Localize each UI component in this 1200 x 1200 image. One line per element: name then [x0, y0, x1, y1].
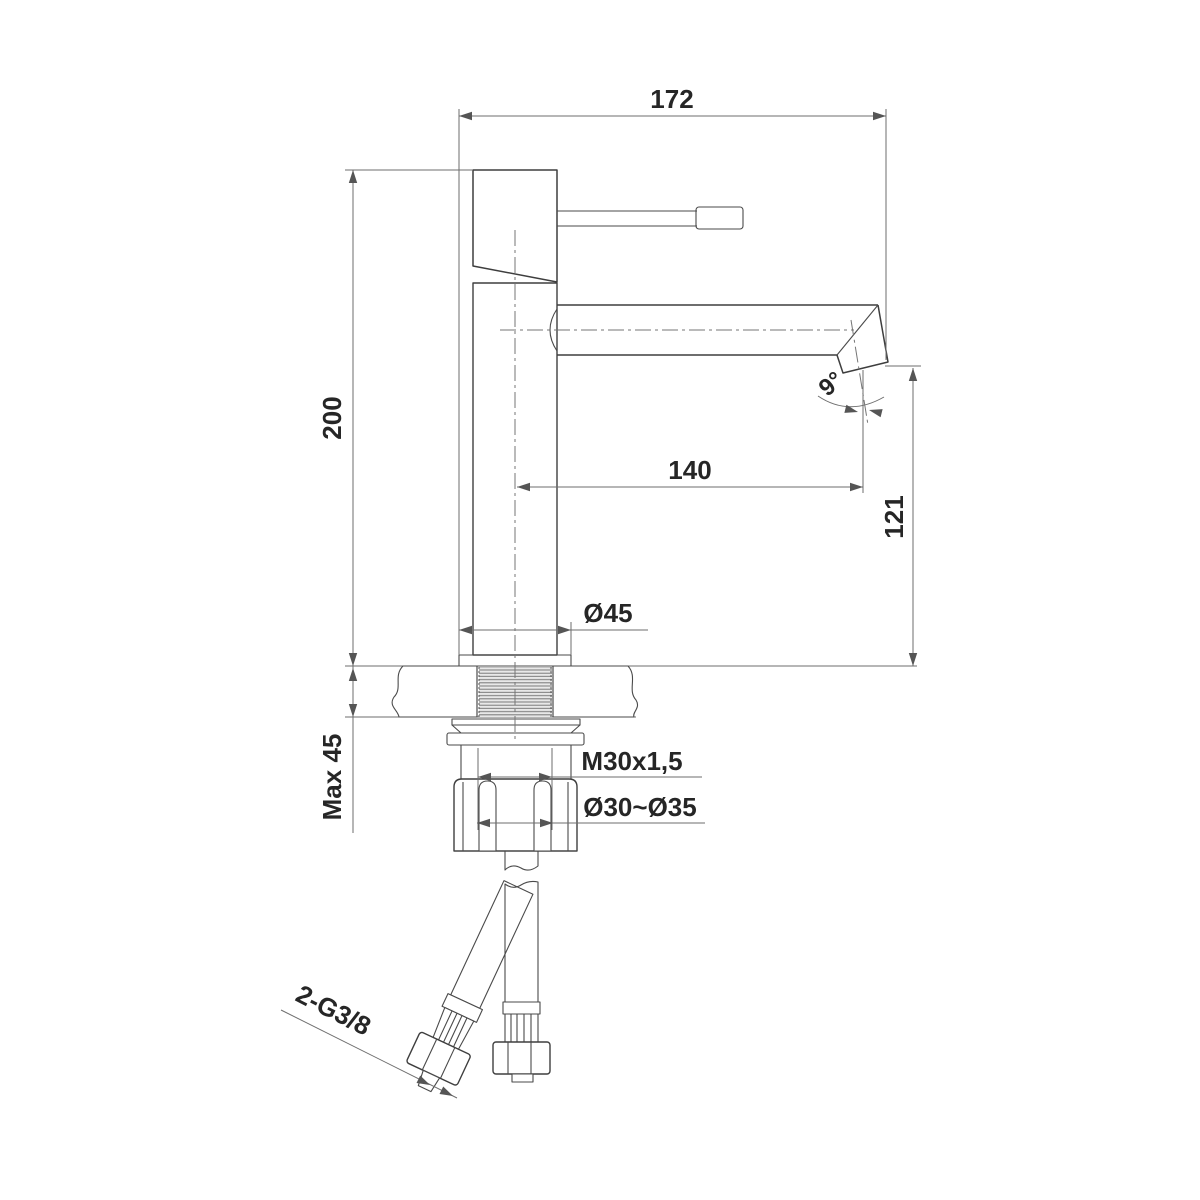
arrowhead: [349, 170, 357, 183]
arrowhead: [558, 626, 571, 634]
shank-thread-label: M30x1,5: [581, 746, 682, 776]
hose-thread-label: 2-G3/8: [291, 979, 375, 1042]
right-hose-collar: [503, 1002, 540, 1014]
handle: [473, 170, 743, 282]
spout-tip-outline: [837, 305, 888, 373]
arrowhead: [850, 483, 863, 491]
max-deck-thickness-label: Max 45: [317, 734, 347, 821]
right-nut-tip: [512, 1074, 533, 1082]
locknut-skirt: [454, 779, 577, 851]
spout: [550, 305, 888, 373]
left-hose-braid: [451, 881, 533, 1009]
arrowhead: [868, 406, 883, 417]
overall-height-label: 200: [317, 396, 347, 439]
right-hose-braid: [505, 881, 538, 1002]
arrowhead: [439, 1086, 454, 1099]
locknut-slot-left: [479, 781, 496, 851]
overall-width-label: 172: [650, 84, 693, 114]
arrowhead: [909, 368, 917, 381]
right-hex-nut: [493, 1042, 550, 1074]
arrowhead: [873, 112, 886, 120]
supply-hoses: [399, 851, 550, 1100]
hose-stub: [505, 851, 538, 870]
arrowhead: [459, 626, 472, 634]
faucet-technical-drawing: 172 200 Max 45 140 121 Ø45: [0, 0, 1200, 1200]
arrowhead: [349, 653, 357, 666]
washer-taper: [452, 725, 580, 733]
dimension-overall-height: 200: [317, 170, 473, 666]
countertop-cross-section: [345, 666, 917, 717]
base-diameter-label: Ø45: [583, 598, 632, 628]
locknut-slot-right: [534, 781, 551, 851]
arrowhead: [349, 704, 357, 717]
outlet-height-label: 121: [879, 495, 909, 538]
counter-right-hatch: [553, 666, 638, 717]
counter-left-hatch: [392, 666, 477, 717]
dimension-max-deck-thickness: Max 45: [317, 666, 357, 833]
right-hose-neck: [505, 1014, 538, 1042]
faucet-technical-drawing-page: 172 200 Max 45 140 121 Ø45: [0, 0, 1200, 1200]
right-hose-assembly: [493, 881, 550, 1082]
arrowhead: [909, 653, 917, 666]
washer: [452, 719, 580, 725]
spout-reach-label: 140: [668, 455, 711, 485]
mounting-hole-label: Ø30~Ø35: [583, 792, 696, 822]
dimension-outlet-height: 121: [879, 366, 921, 666]
lever-knurled-grip: [696, 207, 743, 229]
arrowhead: [349, 668, 357, 681]
arrowhead: [459, 112, 472, 120]
spout-tip-crease: [837, 305, 878, 355]
dimension-spout-reach: 140: [517, 370, 863, 493]
dimension-spout-angle: 9°: [814, 367, 884, 418]
